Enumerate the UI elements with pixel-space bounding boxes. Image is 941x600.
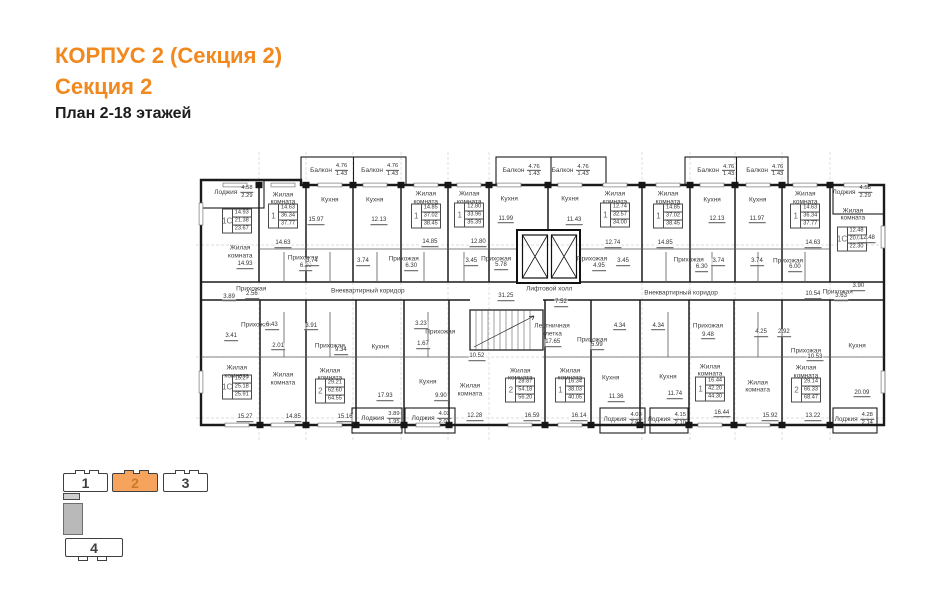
area-dim: 14.85 [657,240,674,248]
room-label: Прихожая [693,322,723,329]
apartment-card: 114.8537.0238.45 [653,204,683,229]
room-label: Кухня [501,195,518,202]
area-dim: 16.59 [524,413,541,421]
room-label: Кухня [561,195,578,202]
area-dim: 20.09 [853,390,870,398]
room-label: Прихожая [389,255,419,262]
room-label: Жилая комната [508,368,533,383]
room-label: Кухня [602,374,619,381]
room-label: Прихожая [674,256,704,263]
area-dim: 12.74 [604,240,621,248]
room-label: Жилая комната [271,192,296,207]
minimap-section-4[interactable]: 4 [65,538,123,557]
room-label: Жилая комната [793,191,818,206]
area-dim: 17.93 [377,393,394,401]
area-dim: 3.74 [305,258,319,266]
balcony-label: Балкон4.761.43 [552,163,590,177]
room-label: Жилая комната [413,191,438,206]
area-dim: 3.74 [356,258,370,266]
area-dim: 12.80 [470,239,487,247]
room-label: Жилая комната [745,379,770,394]
room-label: Прихожая [425,328,455,335]
area-dim: 5.78 [494,262,508,270]
room-label: Лестничная клетка [534,323,569,338]
area-dim: 14.63 [274,240,291,248]
area-dim: 12.13 [708,216,725,224]
apartment-card: 229.1466.3368.47 [791,378,821,403]
apartment-card: 112.7432.5734.00 [600,202,630,227]
area-dim: 2.56 [245,291,259,299]
area-dim: 4.25 [754,329,768,337]
area-dim: 6.30 [404,263,418,271]
balcony-label: Балкон4.761.43 [503,163,541,177]
area-dim: 16.14 [570,413,587,421]
area-dim: 9.34 [334,347,348,355]
room-label: Кухня [659,373,676,380]
plan-subtitle: План 2-18 этажей [55,102,282,126]
room-label: Внеквартирный коридор [331,287,405,294]
room-label: Кухня [703,196,720,203]
area-dim: 10.54 [804,291,821,299]
apartment-card: 1С14.9321.3823.67 [222,209,252,234]
apartment-card: 114.8537.0238.45 [411,204,441,229]
area-dim: 10.52 [468,353,485,361]
area-dim: 9.48 [701,332,715,340]
area-dim: 3.89 [222,294,236,302]
area-dim: 6.00 [788,264,802,272]
balcony-label: Балкон4.761.43 [361,163,399,177]
area-dim: 11.74 [667,391,684,399]
minimap-section-label: 3 [182,475,190,491]
room-label: Кухня [366,196,383,203]
room-label: Жилая комната [228,245,253,260]
minimap-annex-small [63,493,80,500]
area-dim: 6.43 [265,322,279,330]
area-dim: 4.34 [651,323,665,331]
area-dim: 4.34 [613,323,627,331]
room-label: Жилая комната [271,372,296,387]
room-label: Кухня [321,196,338,203]
area-dim: 11.36 [608,394,625,402]
room-label: Кухня [372,343,389,350]
area-dim: 15.16 [337,414,354,422]
area-dim: 17.65 [544,339,561,347]
room-label: Кухня [848,342,865,349]
room-label: Жилая комната [224,365,249,380]
area-dim: 3.74 [750,258,764,266]
room-label: Жилая комната [794,365,819,380]
area-dim: 15.27 [236,414,253,422]
apartment-card: 116.4442.2044.30 [695,376,725,401]
balcony-label: Балкон4.761.43 [746,163,784,177]
page-title: КОРПУС 2 (Секция 2) [55,40,282,72]
apartment-card: 112.8033.9635.39 [454,202,484,227]
area-dim: 2.92 [777,329,791,337]
floor-plan: Балкон4.761.43Балкон4.761.43Балкон4.761.… [196,152,886,442]
balcony-label: Лоджия4.032.02 [603,412,642,426]
area-dim: 11.97 [749,216,766,224]
area-dim: 3.23 [414,321,428,329]
minimap-section-label: 2 [131,475,139,491]
titles-block: КОРПУС 2 (Секция 2) Секция 2 План 2-18 э… [55,40,282,126]
room-label: Жилая комната [458,383,483,398]
area-dim: 14.63 [804,240,821,248]
minimap-section-1[interactable]: 1 [63,473,108,492]
area-dim: 3.91 [304,323,318,331]
area-dim: 14.85 [421,239,438,247]
area-dim: 11.43 [566,217,583,225]
room-label: Кухня [749,196,766,203]
balcony-label: Лоджия4.032.02 [412,411,451,425]
area-dim: 10.53 [806,354,823,362]
area-dim: 4.95 [592,263,606,271]
balcony-label: Лоджия4.152.10 [648,412,687,426]
area-dim: 9.90 [434,393,448,401]
room-label: Жилая комната [558,368,583,383]
balcony-label: Лоджия4.582.29 [833,185,872,199]
area-dim: 12.28 [466,413,483,421]
balcony-label: Балкон4.761.43 [697,163,735,177]
area-dim: 14.85 [285,414,302,422]
area-dim: 31.25 [497,293,514,301]
room-labels: Балкон4.761.43Балкон4.761.43Балкон4.761.… [196,152,886,442]
area-dim: 13.22 [804,413,821,421]
area-dim: 3.45 [464,258,478,266]
area-dim: 12.13 [370,217,387,225]
area-dim: 6.30 [695,264,709,272]
area-dim: 2.01 [271,343,285,351]
room-label: Жилая комната [318,368,343,383]
balcony-label: Лоджия4.582.29 [214,185,253,199]
area-dim: 16.44 [713,410,730,418]
room-label: Жилая комната [698,363,723,378]
room-label: Кухня [419,378,436,385]
room-label: Жилая комната [457,191,482,206]
minimap-section-label: 1 [82,475,90,491]
room-label: Лифтовой холл [526,285,572,292]
room-label: Жилая комната [656,191,681,206]
balcony-label: Балкон4.761.43 [310,163,348,177]
area-dim: 5.99 [590,342,604,350]
room-label: Жилая комната [603,191,628,206]
balcony-label: Лоджия3.891.95 [361,411,400,425]
area-dim: 15.97 [308,217,325,225]
apartment-card: 114.6336.3437.77 [268,204,298,229]
section-title: Секция 2 [55,72,282,102]
area-dim: 1.67 [416,341,430,349]
room-label: Внеквартирный коридор [644,289,718,296]
area-dim: 7.52 [554,299,568,307]
room-label: Прихожая [577,255,607,262]
area-dim: 3.90 [852,283,866,291]
area-dim: 14.93 [236,261,253,269]
minimap-annex-large [63,503,83,535]
area-dim: 3.63 [834,293,848,301]
building-minimap: 1 2 3 4 [60,470,230,570]
minimap-section-label: 4 [90,540,98,556]
area-dim: 12.48 [859,235,876,243]
balcony-label: Лоджия4.282.14 [835,412,874,426]
area-dim: 11.99 [498,216,515,224]
area-dim: 3.45 [616,258,630,266]
minimap-section-2[interactable]: 2 [112,473,158,492]
apartment-card: 114.6336.3437.77 [790,204,820,229]
area-dim: 3.74 [711,258,725,266]
room-label: Жилая комната [841,207,866,222]
floor-plan-page: КОРПУС 2 (Секция 2) Секция 2 План 2-18 э… [0,0,941,600]
area-dim: 3.41 [224,333,238,341]
area-dim: 15.92 [762,413,779,421]
minimap-section-3[interactable]: 3 [163,473,208,492]
